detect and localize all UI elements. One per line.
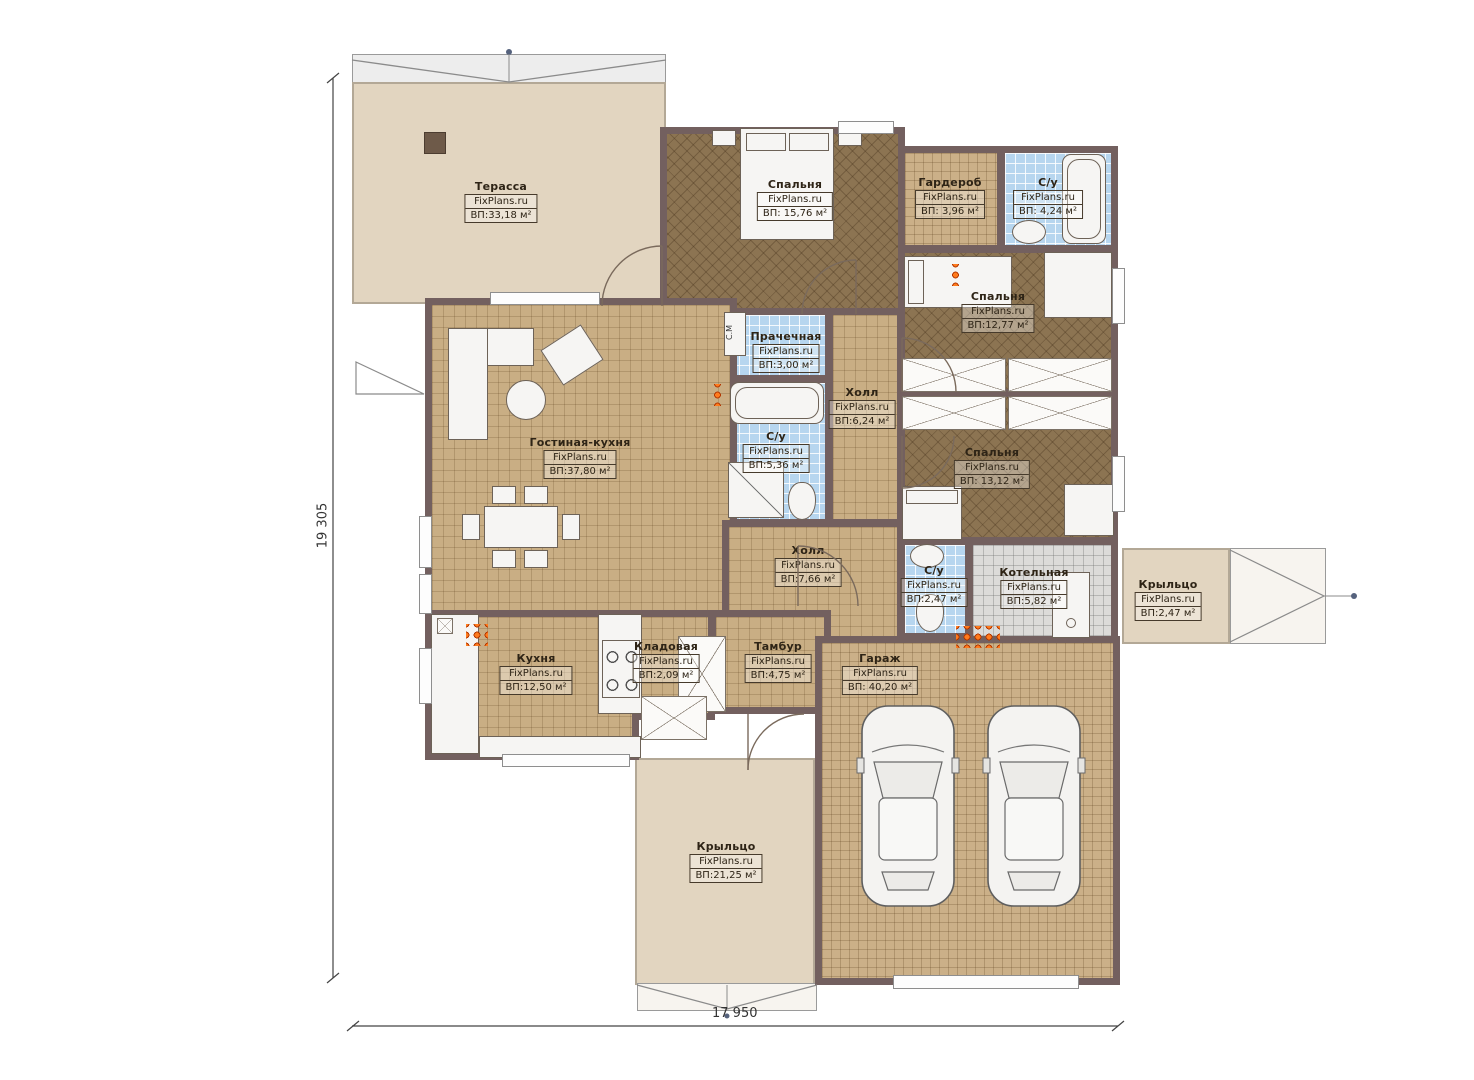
chair (524, 486, 548, 504)
room-label-tambour: Тамбур FixPlans.ruВП:4,75 м² (745, 640, 812, 683)
brand-label: FixPlans.ru (744, 445, 809, 459)
room-area: ВП:33,18 м² (465, 209, 536, 222)
room-name: Гараж (842, 652, 918, 665)
room-name: Прачечная (751, 330, 822, 343)
bathtub (730, 382, 824, 424)
room-label-porch-bottom: Крыльцо FixPlans.ruВП:21,25 м² (689, 840, 762, 883)
brand-label: FixPlans.ru (1002, 581, 1067, 595)
room-area: ВП: 15,76 м² (758, 207, 832, 220)
room-area: ВП:2,09 м² (634, 669, 699, 682)
pillow (908, 260, 924, 304)
radiator (950, 264, 961, 286)
brand-label: FixPlans.ru (1014, 191, 1082, 205)
dimension-height: 19 305 (315, 503, 330, 549)
brand-label: FixPlans.ru (544, 451, 615, 465)
room-name: Гардероб (915, 176, 985, 189)
room-info-box: FixPlans.ruВП:7,66 м² (775, 558, 842, 587)
brand-label: FixPlans.ru (634, 655, 699, 669)
brand-label: FixPlans.ru (830, 401, 895, 415)
brand-label: FixPlans.ru (843, 667, 917, 681)
room-area: ВП: 13,12 м² (955, 475, 1029, 488)
room-info-box: FixPlans.ruВП: 3,96 м² (915, 190, 985, 219)
room-name: Котельная (999, 566, 1068, 579)
room-name: Холл (775, 544, 842, 557)
pillow (746, 133, 786, 151)
room-name: Гостиная-кухня (529, 436, 630, 449)
room-info-box: FixPlans.ruВП:12,50 м² (499, 666, 572, 695)
room-label-living-kitchen: Гостиная-кухня FixPlans.ruВП:37,80 м² (529, 436, 630, 479)
garage-door-opening (893, 975, 1079, 989)
chair (524, 550, 548, 568)
room-label-wardrobe: Гардероб FixPlans.ruВП: 3,96 м² (915, 176, 985, 219)
room-area: ВП:5,82 м² (1002, 595, 1067, 608)
terrace-column (424, 132, 446, 154)
room-label-hall-lower: Холл FixPlans.ruВП:7,66 м² (775, 544, 842, 587)
dining-table (484, 506, 558, 548)
room-label-pantry: Кладовая FixPlans.ruВП:2,09 м² (633, 640, 700, 683)
room-info-box: FixPlans.ruВП: 13,12 м² (954, 460, 1030, 489)
room-area: ВП: 40,20 м² (843, 681, 917, 694)
floor-plan-canvas: С.М Терасса FixPlans.ruВП:33,18 м² Спаль… (0, 0, 1474, 1080)
room-name: Тамбур (745, 640, 812, 653)
room-info-box: FixPlans.ruВП: 15,76 м² (757, 192, 833, 221)
room-name: Крыльцо (1135, 578, 1202, 591)
room-name: С/у (901, 564, 968, 577)
coffee-table (506, 380, 546, 420)
brand-label: FixPlans.ru (916, 191, 984, 205)
room-info-box: FixPlans.ruВП:2,47 м² (1135, 592, 1202, 621)
wardrobe-cabinet (1008, 396, 1112, 430)
room-name: Кладовая (633, 640, 700, 653)
chair (462, 514, 480, 540)
window (502, 754, 630, 767)
room-label-bath-top: С/у FixPlans.ruВП: 4,24 м² (1013, 176, 1083, 219)
room-area: ВП:2,47 м² (902, 593, 967, 606)
room-name: Холл (829, 386, 896, 399)
boiler-dial (1066, 618, 1076, 628)
radiator (956, 626, 1000, 648)
dimension-width: 17 950 (712, 1006, 758, 1021)
kitchen-sink (437, 618, 453, 634)
wardrobe-cabinet (902, 358, 1006, 392)
room-area: ВП:12,50 м² (500, 681, 571, 694)
brand-label: FixPlans.ru (465, 195, 536, 209)
room-info-box: FixPlans.ruВП:5,82 м² (1001, 580, 1068, 609)
radiator (712, 384, 723, 406)
room-name: Терасса (464, 180, 537, 193)
nightstand (712, 130, 736, 146)
room-info-box: FixPlans.ruВП: 40,20 м² (842, 666, 918, 695)
room-info-box: FixPlans.ruВП: 4,24 м² (1013, 190, 1083, 219)
brand-label: FixPlans.ru (758, 193, 832, 207)
room-area: ВП:7,66 м² (776, 573, 841, 586)
room-area: ВП:4,75 м² (746, 669, 811, 682)
room-name: Крыльцо (689, 840, 762, 853)
desk (1044, 252, 1112, 318)
room-info-box: FixPlans.ruВП:2,09 м² (633, 654, 700, 683)
room-info-box: FixPlans.ruВП:21,25 м² (689, 854, 762, 883)
room-info-box: FixPlans.ruВП:6,24 м² (829, 400, 896, 429)
brand-label: FixPlans.ru (776, 559, 841, 573)
room-name: Спальня (961, 290, 1034, 303)
room-label-boiler: Котельная FixPlans.ruВП:5,82 м² (999, 566, 1068, 609)
chair (562, 514, 580, 540)
pillow (789, 133, 829, 151)
room-label-garage: Гараж FixPlans.ruВП: 40,20 м² (842, 652, 918, 695)
room-label-laundry: Прачечная FixPlans.ruВП:3,00 м² (751, 330, 822, 373)
brand-label: FixPlans.ru (1136, 593, 1201, 607)
room-label-porch-right: Крыльцо FixPlans.ruВП:2,47 м² (1135, 578, 1202, 621)
room-label-bedroom-right: Спальня FixPlans.ruВП:12,77 м² (961, 290, 1034, 333)
room-area: ВП: 4,24 м² (1014, 205, 1082, 218)
terrace-roof-band (352, 54, 666, 84)
room-name: Кухня (499, 652, 572, 665)
washing-machine-label: С.М (725, 325, 734, 340)
room-info-box: FixPlans.ruВП:12,77 м² (961, 304, 1034, 333)
room-info-box: FixPlans.ruВП:37,80 м² (543, 450, 616, 479)
window (419, 516, 432, 568)
room-name: С/у (1013, 176, 1083, 189)
wardrobe-cabinet (902, 396, 1006, 430)
brand-label: FixPlans.ru (902, 579, 967, 593)
desk (1064, 484, 1114, 536)
room-area: ВП:6,24 м² (830, 415, 895, 428)
room-area: ВП:37,80 м² (544, 465, 615, 478)
brand-label: FixPlans.ru (955, 461, 1029, 475)
room-area: ВП:3,00 м² (754, 359, 819, 372)
brand-label: FixPlans.ru (754, 345, 819, 359)
toilet (788, 482, 816, 520)
room-name: Спальня (757, 178, 833, 191)
room-area: ВП:12,77 м² (962, 319, 1033, 332)
porch-right-gable-box (1230, 548, 1326, 644)
radiator (466, 624, 488, 646)
chair (492, 486, 516, 504)
chair (492, 550, 516, 568)
room-label-bath-middle: С/у FixPlans.ruВП:5,36 м² (743, 430, 810, 473)
pantry-cabinet (641, 696, 707, 740)
room-label-bath-small: С/у FixPlans.ruВП:2,47 м² (901, 564, 968, 607)
brand-label: FixPlans.ru (690, 855, 761, 869)
window (1112, 456, 1125, 512)
room-label-bedroom-lower: Спальня FixPlans.ruВП: 13,12 м² (954, 446, 1030, 489)
brand-label: FixPlans.ru (746, 655, 811, 669)
sink (1012, 220, 1046, 244)
room-area: ВП:21,25 м² (690, 869, 761, 882)
room-label-kitchen: Кухня FixPlans.ruВП:12,50 м² (499, 652, 572, 695)
wardrobe-cabinet (1008, 358, 1112, 392)
room-name: С/у (743, 430, 810, 443)
room-info-box: FixPlans.ruВП:2,47 м² (901, 578, 968, 607)
window (419, 648, 432, 704)
room-label-bedroom-top: Спальня FixPlans.ruВП: 15,76 м² (757, 178, 833, 221)
window (838, 121, 894, 134)
room-info-box: FixPlans.ruВП:4,75 м² (745, 654, 812, 683)
room-label-hall-upper: Холл FixPlans.ruВП:6,24 м² (829, 386, 896, 429)
room-area: ВП:2,47 м² (1136, 607, 1201, 620)
room-area: ВП:5,36 м² (744, 459, 809, 472)
room-info-box: FixPlans.ruВП:5,36 м² (743, 444, 810, 473)
room-info-box: FixPlans.ruВП:3,00 м² (753, 344, 820, 373)
sofa (448, 328, 488, 440)
window (490, 292, 600, 305)
brand-label: FixPlans.ru (500, 667, 571, 681)
room-info-box: FixPlans.ruВП:33,18 м² (464, 194, 537, 223)
pillow (906, 490, 958, 504)
window (1112, 268, 1125, 324)
room-name: Спальня (954, 446, 1030, 459)
window (419, 574, 432, 614)
room-area: ВП: 3,96 м² (916, 205, 984, 218)
brand-label: FixPlans.ru (962, 305, 1033, 319)
room-label-terrace: Терасса FixPlans.ruВП:33,18 м² (464, 180, 537, 223)
